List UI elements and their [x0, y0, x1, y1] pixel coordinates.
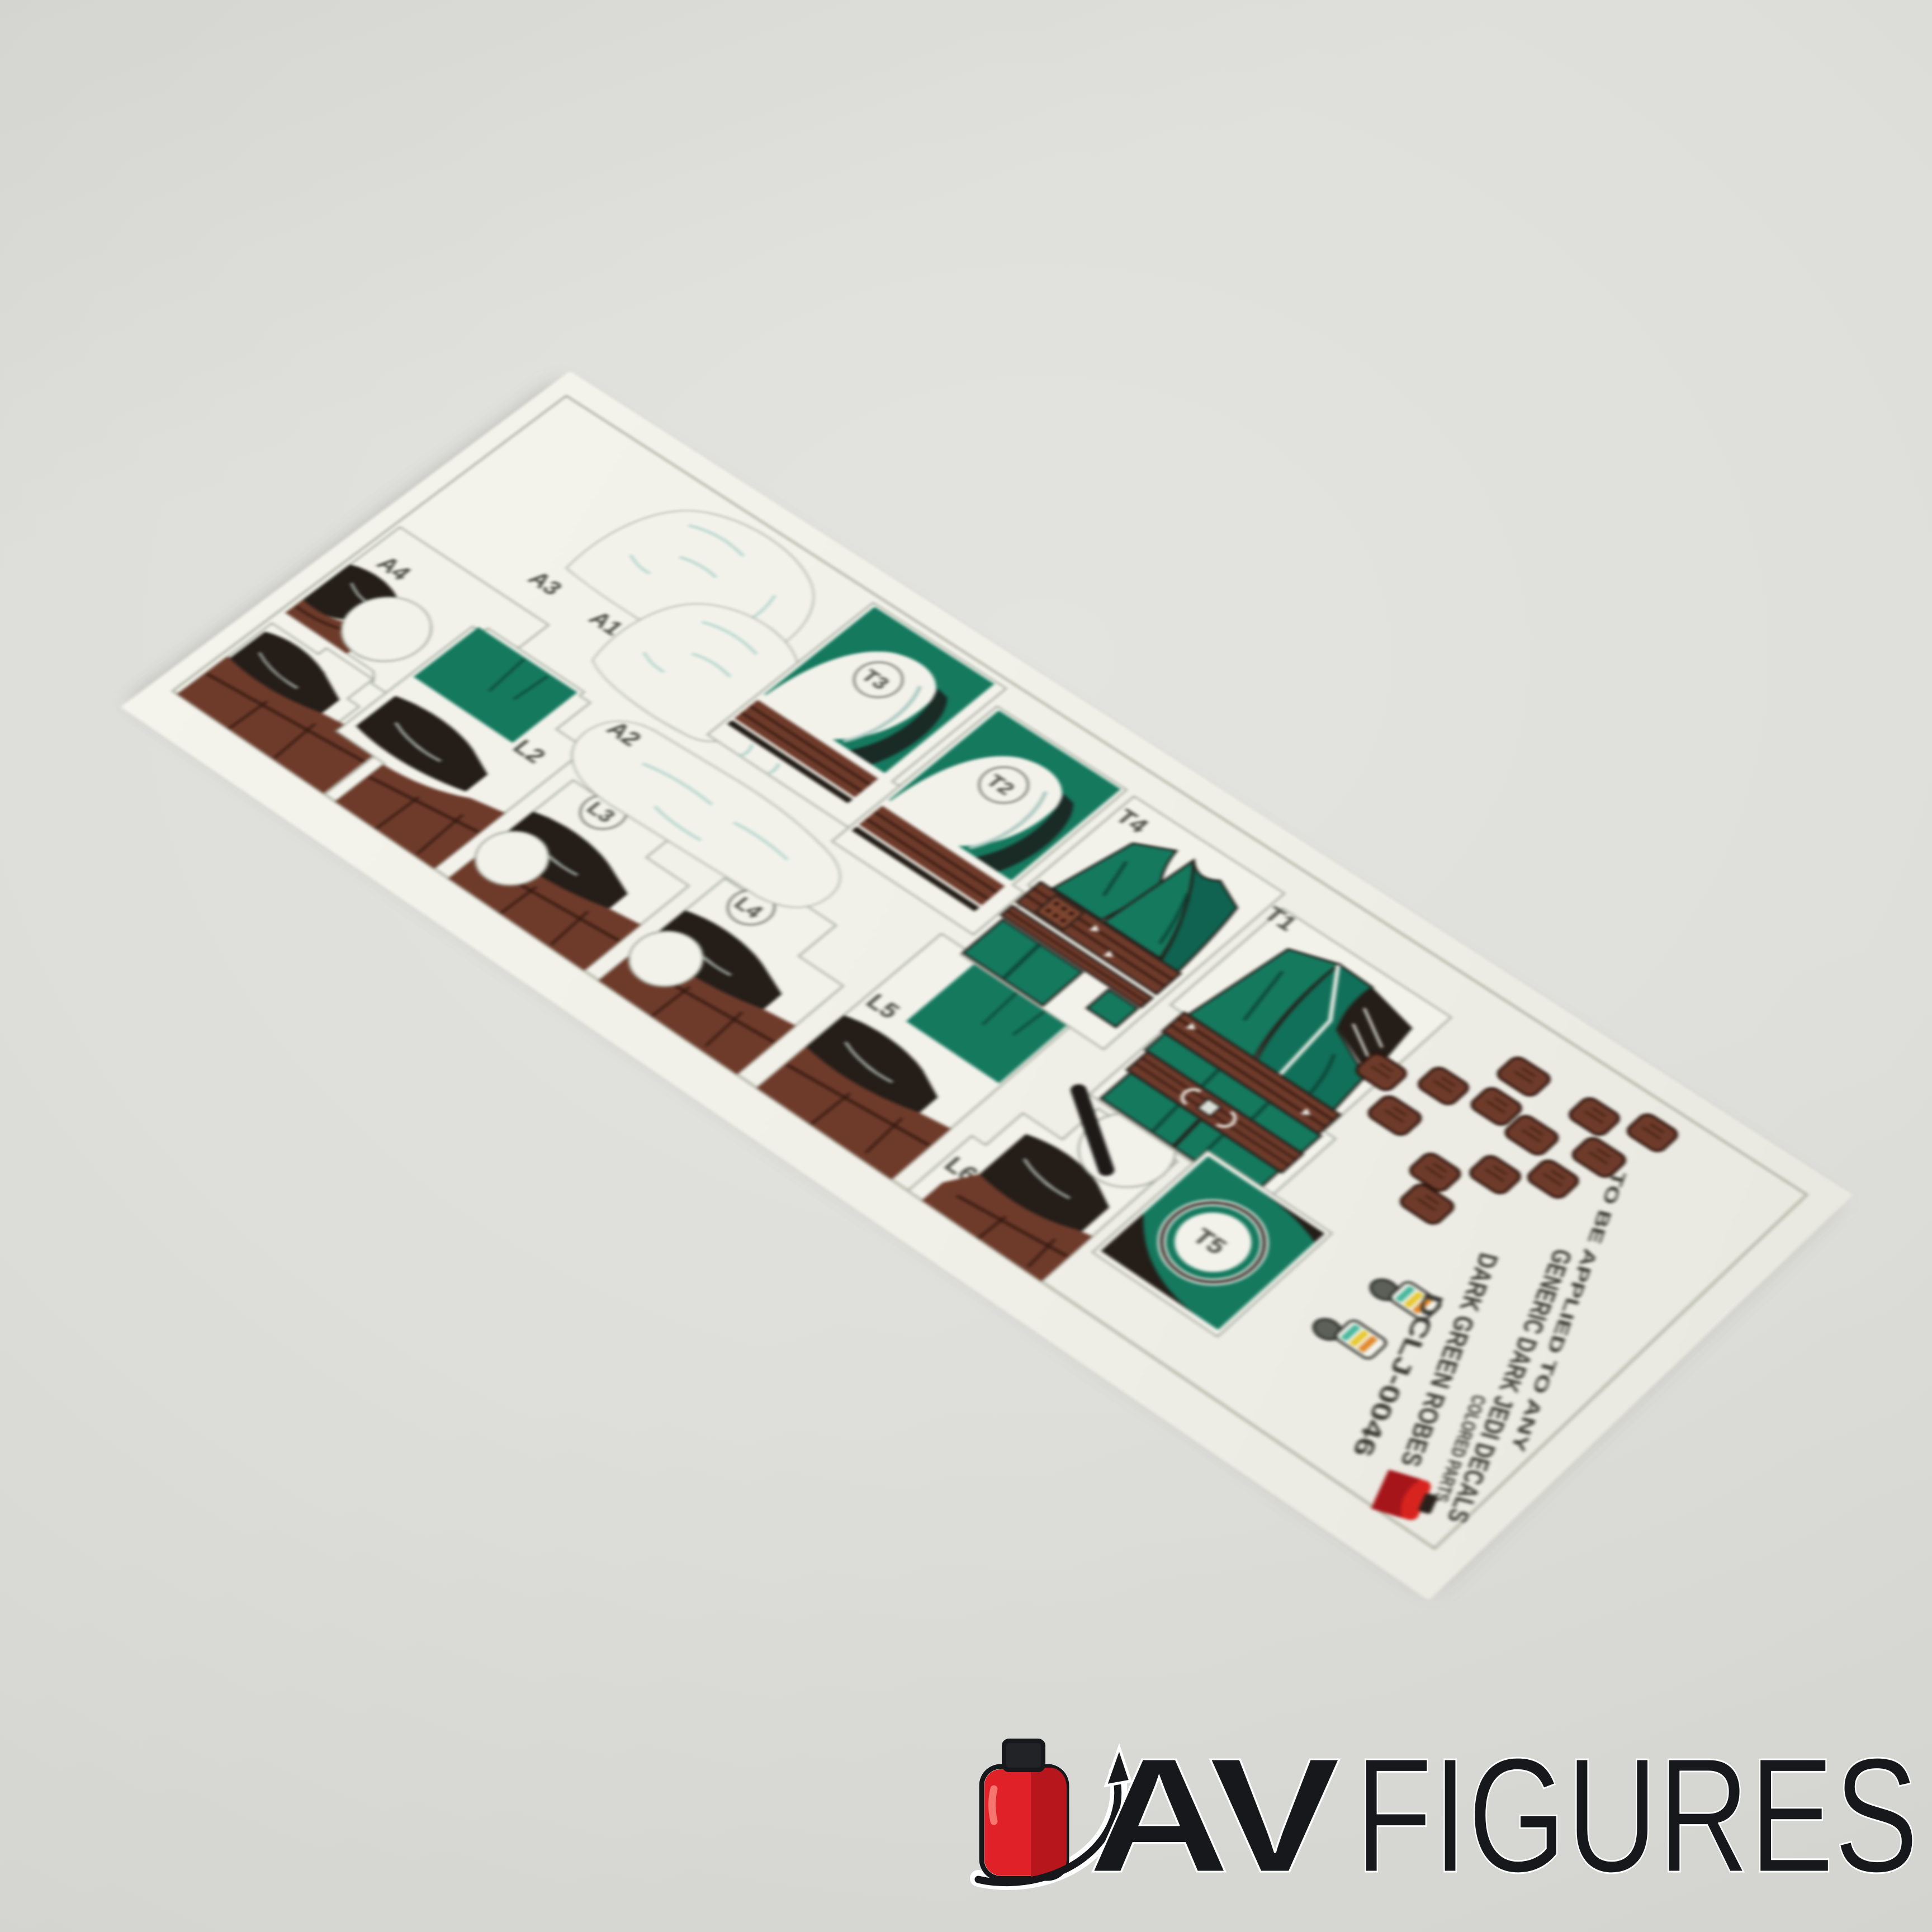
svg-text:AV: AV — [1088, 1732, 1342, 1894]
svg-text:FIGURES: FIGURES — [1355, 1732, 1919, 1894]
